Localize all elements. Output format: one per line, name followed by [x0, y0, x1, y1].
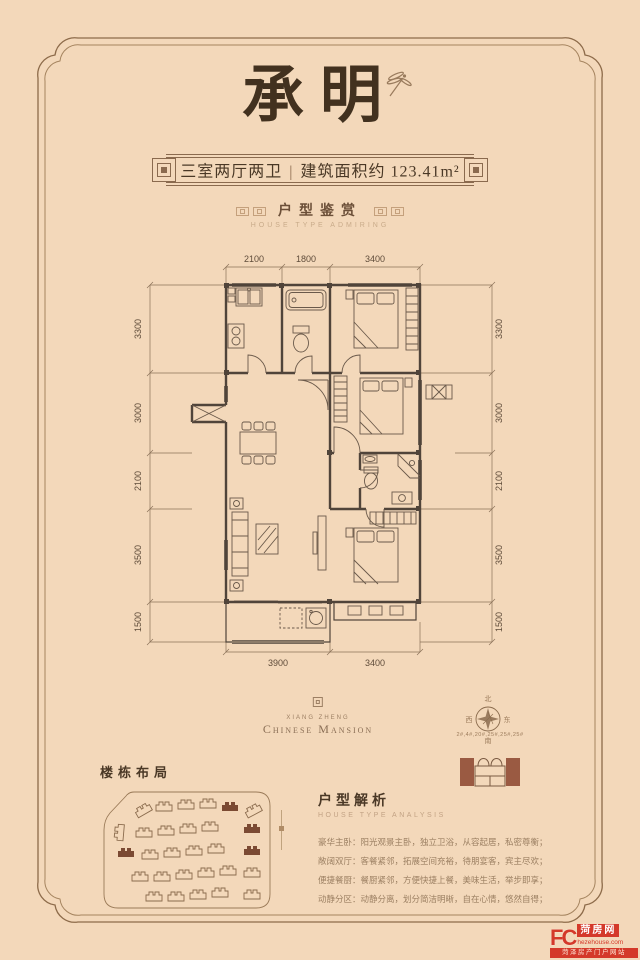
- watermark: FC 菏房网 hezehouse.com 菏泽房产门户网站: [550, 920, 638, 958]
- furniture: [228, 288, 420, 628]
- analysis-line: 豪华主卧：阳光观景主卧，独立卫浴，从容起居，私密尊衡；: [318, 833, 568, 852]
- banner-line: [166, 154, 474, 155]
- layout-section-title: 楼栋布局: [100, 762, 172, 781]
- brand-seal-icon: [313, 697, 323, 707]
- appreciation-title: 户型鉴赏: [278, 204, 362, 219]
- separator: |: [282, 164, 300, 181]
- watermark-logo: FC: [550, 929, 575, 947]
- appreciation-subtitle: HOUSE TYPE ADMIRING: [0, 222, 640, 229]
- rooms-spec: 三室两厅两卫: [180, 164, 282, 181]
- spec-banner: 三室两厅两卫|建筑面积约 123.41m²: [156, 152, 484, 188]
- analysis-subtitle: HOUSE TYPE ANALYSIS: [318, 812, 568, 819]
- dragonfly-icon: [384, 66, 414, 100]
- area-spec: 建筑面积约 123.41m²: [300, 164, 459, 181]
- poster-page: 承明 三室两厅两卫|建筑面积约 123.41m² 户型鉴赏 HOUSE TYPE…: [0, 0, 640, 960]
- building-numbers: 2#,4#,20#,25#,25#,25#: [444, 732, 536, 738]
- brand-name: Chinese Mansion: [263, 722, 373, 737]
- svg-text:3900: 3900: [268, 658, 288, 668]
- doors: [248, 355, 384, 527]
- svg-text:1500: 1500: [133, 612, 143, 632]
- banner-line: [166, 182, 474, 183]
- svg-text:3000: 3000: [133, 403, 143, 423]
- watermark-url: hezehouse.com: [577, 939, 623, 947]
- svg-text:3000: 3000: [494, 403, 504, 423]
- appreciation-header: 户型鉴赏 HOUSE TYPE ADMIRING: [0, 200, 640, 229]
- brand-logo: XIANG ZHENG Chinese Mansion: [263, 694, 373, 737]
- svg-text:北: 北: [485, 695, 492, 703]
- banner-line: [166, 185, 474, 186]
- svg-text:3400: 3400: [365, 254, 385, 264]
- svg-text:东: 东: [504, 715, 511, 724]
- columns: [224, 283, 421, 604]
- ornament-left: [234, 202, 268, 220]
- dimension-labels: 2100 1800 3400 3900 3400 3300 3000 2100 …: [133, 254, 504, 668]
- siteplan-svg: [98, 784, 288, 924]
- svg-text:西: 西: [466, 716, 473, 724]
- watermark-tagline: 菏泽房产门户网站: [550, 948, 638, 958]
- svg-text:3300: 3300: [494, 319, 504, 339]
- watermark-site-name: 菏房网: [577, 924, 619, 937]
- banner-text: 三室两厅两卫|建筑面积约 123.41m²: [156, 158, 484, 182]
- page-title: 承明: [0, 62, 640, 130]
- analysis-line: 敞阔双厅：客餐紧邻，拓展空间充裕，待朋宴客，宾主尽欢；: [318, 852, 568, 871]
- svg-text:1500: 1500: [494, 612, 504, 632]
- svg-text:3500: 3500: [494, 545, 504, 565]
- floorplan-svg: 2100 1800 3400 3900 3400 3300 3000 2100 …: [120, 240, 520, 700]
- brand-pinyin: XIANG ZHENG: [263, 715, 373, 721]
- svg-text:2100: 2100: [244, 254, 264, 264]
- ornament-right: [372, 202, 406, 220]
- dimension-lines: [147, 264, 495, 655]
- svg-text:3400: 3400: [365, 658, 385, 668]
- svg-text:2100: 2100: [133, 471, 143, 491]
- analysis-title: 户型解析: [318, 790, 568, 810]
- svg-text:2100: 2100: [494, 471, 504, 491]
- ac-platform: [348, 385, 452, 615]
- analysis-line: 便捷餐厨：餐厨紧邻，方便快捷上餐，美味生活，举步即享；: [318, 871, 568, 890]
- section-divider: [281, 810, 282, 850]
- analysis-section: 户型解析 HOUSE TYPE ANALYSIS 豪华主卧：阳光观景主卧，独立卫…: [318, 790, 568, 909]
- shaft: [192, 405, 226, 422]
- svg-text:1800: 1800: [296, 254, 316, 264]
- svg-text:3500: 3500: [133, 545, 143, 565]
- analysis-line: 动静分区：动静分离，划分简洁明晰，自在心情，悠然自得；: [318, 890, 568, 909]
- buildings: [114, 799, 262, 901]
- svg-text:3300: 3300: [133, 319, 143, 339]
- analysis-lines: 豪华主卧：阳光观景主卧，独立卫浴，从容起居，私密尊衡； 敞阔双厅：客餐紧邻，拓展…: [318, 833, 568, 909]
